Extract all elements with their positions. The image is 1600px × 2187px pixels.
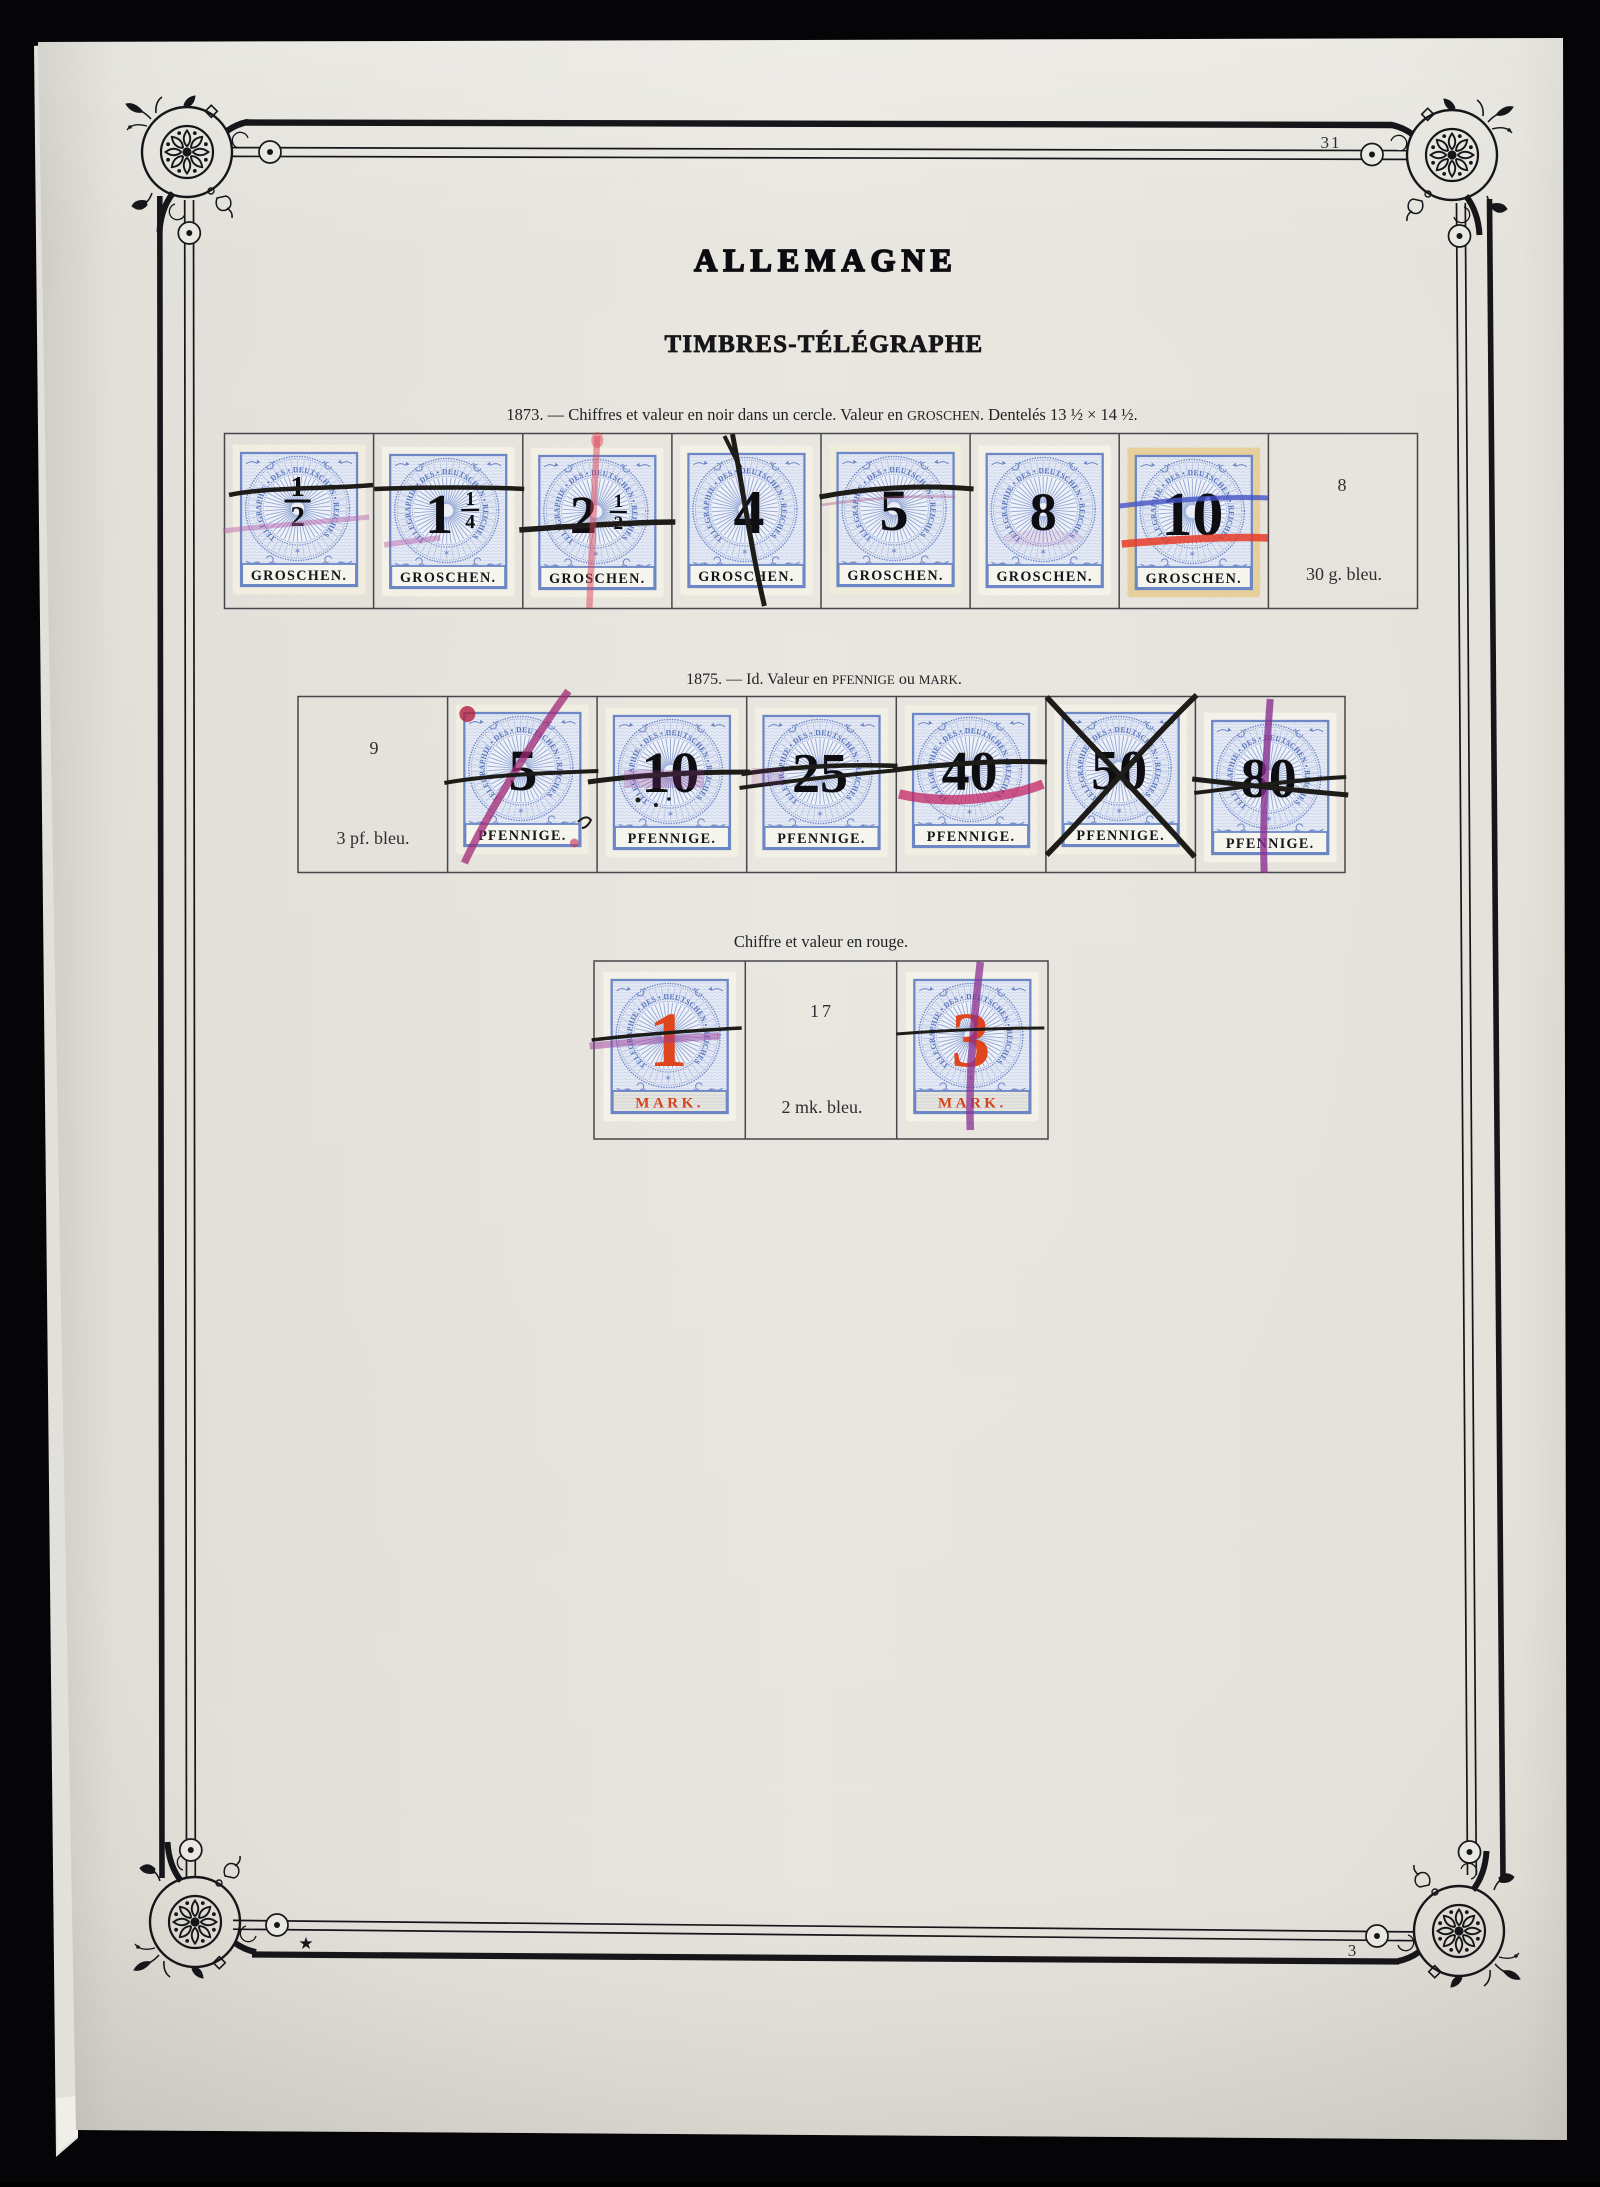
svg-text:GROSCHEN.: GROSCHEN. xyxy=(847,568,943,584)
svg-text:GROSCHEN.: GROSCHEN. xyxy=(549,571,645,587)
svg-text:8: 8 xyxy=(1338,475,1347,495)
svg-text:9: 9 xyxy=(370,738,379,758)
svg-text:GROSCHEN.: GROSCHEN. xyxy=(400,570,496,586)
svg-text:ALLEMAGNE: ALLEMAGNE xyxy=(694,242,958,278)
svg-text:Chiffre et valeur en rouge.: Chiffre et valeur en rouge. xyxy=(734,932,908,951)
svg-text:TIMBRES-TÉLÉGRAPHE: TIMBRES-TÉLÉGRAPHE xyxy=(665,330,984,358)
svg-text:GROSCHEN.: GROSCHEN. xyxy=(1146,571,1242,587)
svg-text:PFENNIGE.: PFENNIGE. xyxy=(628,831,717,847)
svg-text:MARK.: MARK. xyxy=(635,1096,704,1112)
svg-text:GROSCHEN.: GROSCHEN. xyxy=(251,568,347,584)
svg-text:1875. — Id. Valeur en PFENNIGE: 1875. — Id. Valeur en PFENNIGE ou MARK. xyxy=(686,671,962,688)
svg-text:2: 2 xyxy=(290,501,305,533)
svg-text:2 mk. bleu.: 2 mk. bleu. xyxy=(782,1097,863,1117)
svg-text:1873. — Chiffres et valeur en: 1873. — Chiffres et valeur en noir dans … xyxy=(506,405,1137,424)
svg-text:17: 17 xyxy=(810,1001,834,1021)
svg-text:★: ★ xyxy=(298,1934,313,1953)
svg-text:PFENNIGE.: PFENNIGE. xyxy=(478,828,567,844)
svg-text:1: 1 xyxy=(614,491,624,512)
svg-text:PFENNIGE.: PFENNIGE. xyxy=(777,831,866,847)
svg-text:PFENNIGE.: PFENNIGE. xyxy=(927,829,1016,845)
svg-text:3 pf. bleu.: 3 pf. bleu. xyxy=(337,828,410,848)
svg-text:31: 31 xyxy=(1321,133,1342,152)
svg-text:1: 1 xyxy=(465,488,475,510)
svg-text:4: 4 xyxy=(465,511,475,533)
svg-text:3: 3 xyxy=(1348,1941,1357,1960)
svg-text:PFENNIGE.: PFENNIGE. xyxy=(1076,828,1165,844)
svg-text:PFENNIGE.: PFENNIGE. xyxy=(1226,836,1315,852)
svg-text:30 g. bleu.: 30 g. bleu. xyxy=(1306,564,1382,584)
svg-text:GROSCHEN.: GROSCHEN. xyxy=(698,569,794,585)
svg-text:GROSCHEN.: GROSCHEN. xyxy=(996,569,1092,585)
